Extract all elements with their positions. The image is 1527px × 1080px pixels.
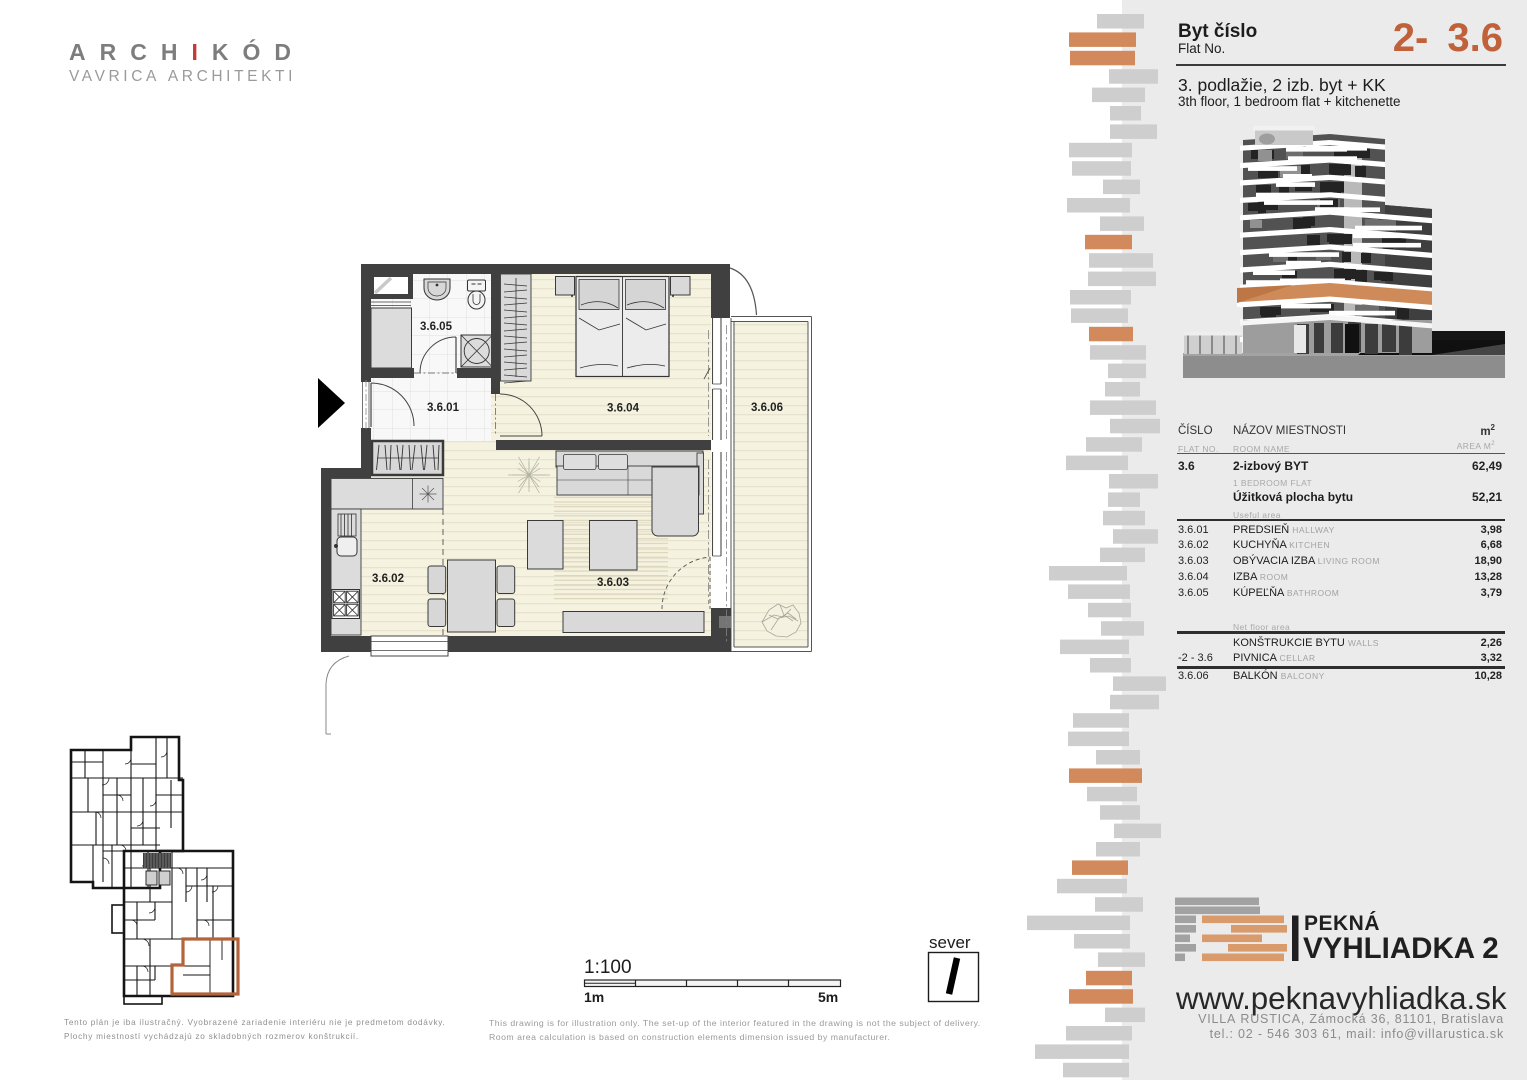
- svg-text:3.6.04: 3.6.04: [607, 403, 640, 415]
- svg-text:3.6.06: 3.6.06: [751, 402, 783, 414]
- svg-text:3.6.03: 3.6.03: [597, 577, 629, 589]
- svg-text:3.6.01: 3.6.01: [427, 402, 460, 414]
- svg-text:3.6.02: 3.6.02: [372, 573, 404, 585]
- svg-text:3.6.05: 3.6.05: [420, 321, 453, 333]
